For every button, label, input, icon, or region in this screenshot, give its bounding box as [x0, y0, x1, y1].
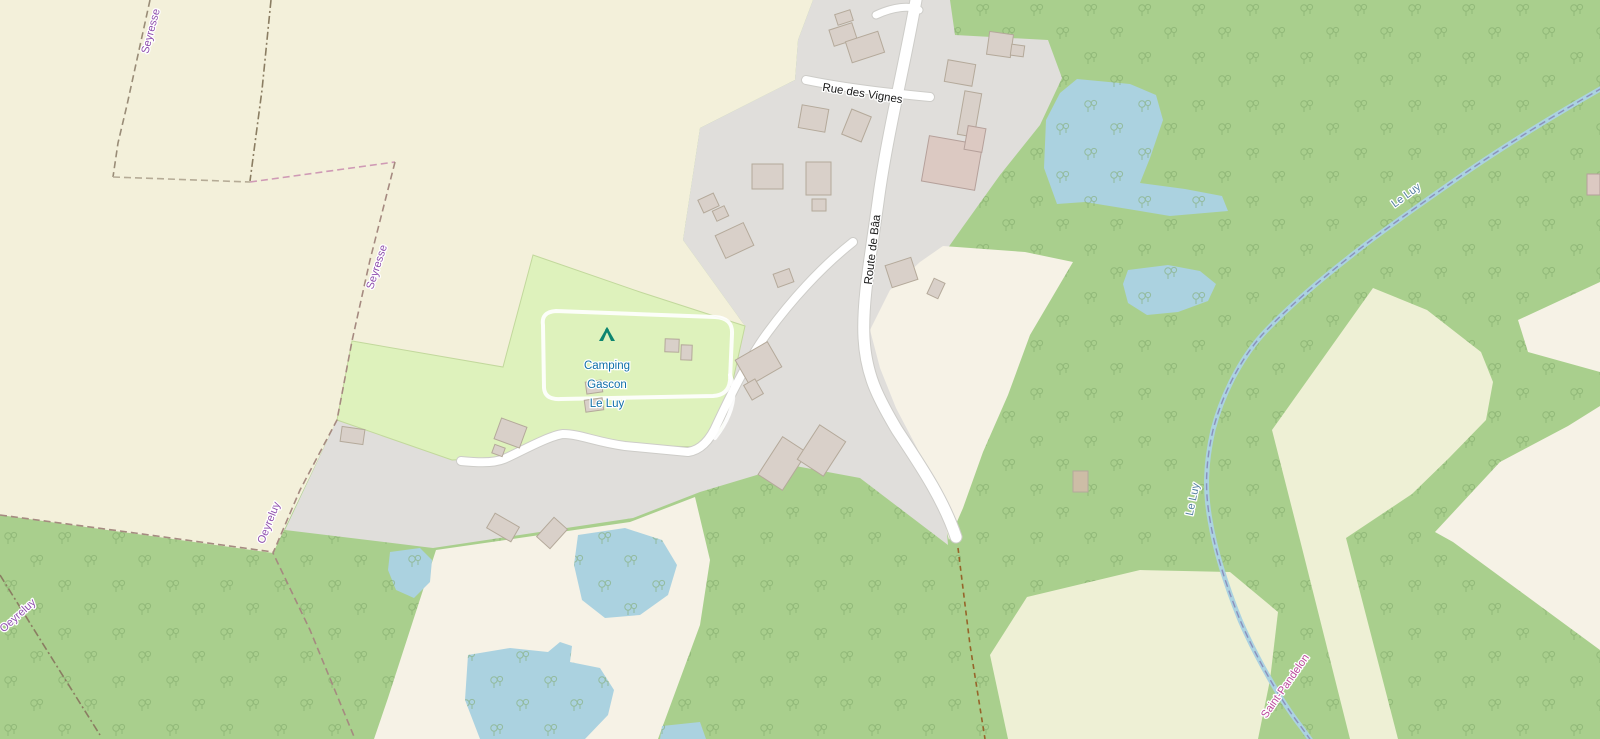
building	[798, 105, 829, 132]
building	[1073, 471, 1088, 492]
building	[1587, 174, 1600, 195]
building	[665, 339, 679, 352]
building	[752, 164, 783, 189]
building	[987, 31, 1014, 57]
building	[964, 126, 986, 153]
campsite-label-line: Camping	[584, 360, 630, 372]
building	[1010, 44, 1024, 57]
building	[806, 162, 831, 195]
building	[812, 199, 826, 211]
map-viewport[interactable]: SeyresseSeyresseOeyreluyOeyreluySaint-Pa…	[0, 0, 1600, 739]
map-canvas[interactable]: SeyresseSeyresseOeyreluyOeyreluySaint-Pa…	[0, 0, 1600, 739]
building	[681, 345, 693, 360]
campsite-label-line: Gascon	[587, 379, 627, 391]
campsite-label-line: Le Luy	[590, 398, 625, 410]
building	[340, 426, 365, 444]
building	[944, 60, 975, 87]
